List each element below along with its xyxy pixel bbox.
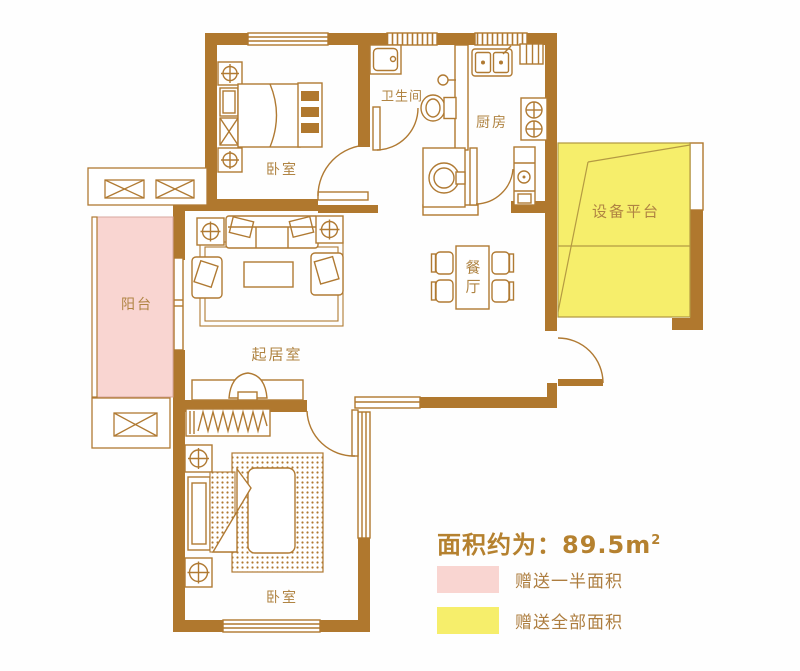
ac-platform-top [88, 168, 207, 205]
nightstand-icon [185, 445, 212, 472]
ac-platform-bottom [92, 398, 170, 448]
room-label-kitchen: 厨房 [476, 112, 508, 132]
side-table-icon [316, 216, 343, 243]
toilet-icon [421, 95, 456, 121]
area-exponent: 2 [651, 533, 661, 548]
armchair-icon [192, 257, 222, 298]
bedroom-bottom-furniture [185, 409, 323, 587]
legend-label-full-area: 赠送全部面积 [515, 608, 623, 633]
yellow-swatch [437, 607, 499, 634]
dining-chair-icon [492, 252, 514, 274]
sofa-icon [226, 216, 318, 248]
legend: 面积约为：89.5m2 赠送一半面积 赠送全部面积 [437, 525, 767, 560]
floor-plan: 卧室 卫生间 厨房 设备平台 阳台 起居室 餐厅 卧室 面积约为：89.5m2 … [0, 0, 800, 671]
living-room-furniture [192, 216, 343, 400]
room-label-balcony: 阳台 [121, 294, 153, 314]
bed-icon [220, 83, 322, 147]
area-value: 89.5m [562, 531, 651, 559]
wash-basin-icon [423, 148, 465, 207]
room-label-dining-room: 餐厅 [465, 258, 482, 296]
radiator-icon [186, 409, 270, 436]
room-label-bathroom: 卫生间 [381, 86, 423, 105]
legend-label-half-area: 赠送一半面积 [515, 567, 623, 592]
entry-door-arc [558, 338, 603, 383]
bathroom-fixtures [370, 45, 465, 207]
tv-cabinet-icon [192, 373, 303, 400]
sink-icon [472, 46, 512, 76]
pink-swatch [437, 566, 499, 593]
counter-icon [514, 147, 535, 205]
room-label-bedroom-top: 卧室 [266, 159, 298, 179]
stove-icon [521, 98, 547, 140]
nightstand-icon [218, 62, 242, 85]
equipment-platform-area [558, 143, 690, 317]
room-label-bedroom-bottom: 卧室 [266, 587, 298, 607]
nightstand-icon [185, 558, 212, 587]
room-label-living-room: 起居室 [251, 344, 302, 365]
dining-chair-icon [432, 280, 454, 302]
armchair-icon [311, 253, 343, 295]
washing-machine-icon [370, 45, 401, 74]
dining-chair-icon [492, 280, 514, 302]
bedroom-top-furniture [218, 62, 322, 172]
flue-window-icon [520, 44, 543, 64]
room-label-equipment-platform: 设备平台 [592, 201, 660, 222]
side-table-icon [197, 218, 224, 245]
dining-chair-icon [432, 252, 454, 274]
nightstand-icon [218, 148, 242, 172]
entry-door-leaf [558, 379, 603, 386]
coffee-table-icon [244, 262, 293, 287]
legend-item-full-area: 赠送全部面积 [437, 607, 623, 634]
area-prefix: 面积约为： [437, 531, 562, 559]
faucet-icon [438, 75, 456, 85]
legend-item-half-area: 赠送一半面积 [437, 566, 623, 593]
area-title: 面积约为：89.5m2 [437, 525, 767, 560]
